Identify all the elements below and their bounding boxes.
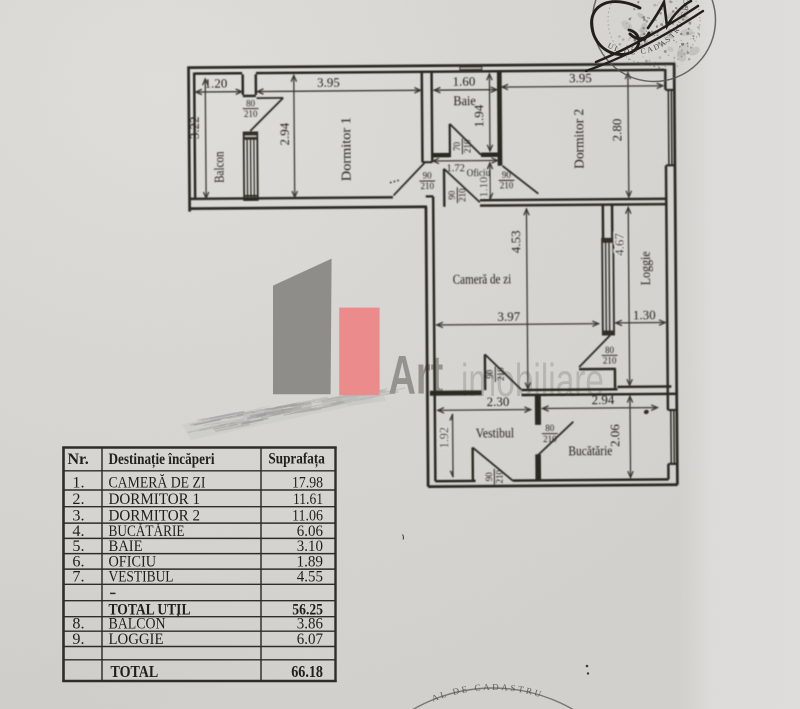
- svg-text:1.72: 1.72: [446, 163, 464, 174]
- svg-text:Nr.: Nr.: [68, 451, 89, 468]
- svg-text:7.: 7.: [72, 568, 84, 586]
- svg-text:11.61: 11.61: [293, 490, 323, 508]
- svg-text:4.55: 4.55: [297, 568, 323, 586]
- svg-text:1.60: 1.60: [453, 73, 476, 88]
- svg-text:4.67: 4.67: [612, 233, 627, 256]
- svg-text:imobiliare: imobiliare: [461, 354, 604, 406]
- svg-text:210: 210: [494, 469, 504, 483]
- svg-text:3.97: 3.97: [497, 309, 520, 324]
- svg-text:CAMERĂ DE ZI: CAMERĂ DE ZI: [109, 473, 206, 492]
- svg-text:1.: 1.: [72, 474, 84, 492]
- svg-text:210: 210: [500, 181, 514, 191]
- svg-text:1.10: 1.10: [476, 177, 490, 198]
- svg-text:3.95: 3.95: [569, 70, 592, 85]
- svg-text:2.94: 2.94: [592, 392, 615, 407]
- svg-text:Balcon: Balcon: [211, 151, 226, 183]
- svg-text:90: 90: [423, 171, 433, 181]
- svg-text:2.30: 2.30: [487, 394, 510, 409]
- svg-text:4.53: 4.53: [508, 230, 523, 253]
- svg-text:90: 90: [502, 170, 512, 180]
- svg-text:70: 70: [452, 141, 462, 151]
- svg-text:210: 210: [603, 356, 617, 366]
- svg-text:9.: 9.: [72, 630, 84, 648]
- svg-text:Loggie: Loggie: [638, 251, 653, 285]
- svg-text:Dormitor 2: Dormitor 2: [571, 109, 586, 169]
- svg-text:1.30: 1.30: [633, 307, 656, 322]
- svg-text:210: 210: [462, 139, 472, 153]
- svg-text:90: 90: [485, 369, 495, 379]
- svg-text:210: 210: [244, 109, 258, 119]
- svg-text:80: 80: [545, 423, 555, 433]
- svg-text:80: 80: [246, 98, 256, 108]
- svg-text:Baie: Baie: [453, 93, 476, 108]
- svg-text:VESTIBUL: VESTIBUL: [109, 568, 174, 586]
- svg-text:80: 80: [605, 345, 615, 355]
- svg-text:6.07: 6.07: [297, 630, 323, 648]
- svg-text:TOTAL: TOTAL: [111, 662, 159, 681]
- svg-text:DORMITOR 1: DORMITOR 1: [109, 490, 201, 508]
- svg-text:Suprafața: Suprafața: [268, 451, 325, 469]
- svg-text:210: 210: [420, 181, 434, 191]
- svg-text:Bucătărie: Bucătărie: [568, 443, 612, 458]
- svg-text:2.94: 2.94: [277, 122, 292, 145]
- svg-text:Vestibul: Vestibul: [476, 425, 515, 440]
- svg-text:LOGGIE: LOGGIE: [109, 630, 164, 648]
- svg-text:Cameră de zi: Cameră de zi: [453, 271, 512, 286]
- svg-text:3.22: 3.22: [187, 116, 202, 139]
- svg-text:Destinație încăperi: Destinație încăperi: [109, 451, 215, 469]
- svg-text:3.95: 3.95: [317, 75, 340, 90]
- svg-text:90: 90: [447, 190, 457, 200]
- svg-text:210: 210: [543, 434, 557, 444]
- svg-text:2.80: 2.80: [609, 119, 624, 142]
- svg-text:17.98: 17.98: [292, 474, 323, 492]
- svg-text:2.: 2.: [72, 490, 84, 508]
- svg-text:66.18: 66.18: [291, 662, 323, 681]
- svg-text:1.20: 1.20: [205, 75, 228, 90]
- svg-text:Dormitor 1: Dormitor 1: [338, 117, 354, 181]
- svg-text:Oficiu: Oficiu: [467, 167, 491, 179]
- svg-text:210: 210: [457, 188, 467, 202]
- svg-text:1.92: 1.92: [437, 427, 451, 448]
- svg-text:90: 90: [484, 472, 494, 482]
- svg-text:210: 210: [495, 367, 505, 381]
